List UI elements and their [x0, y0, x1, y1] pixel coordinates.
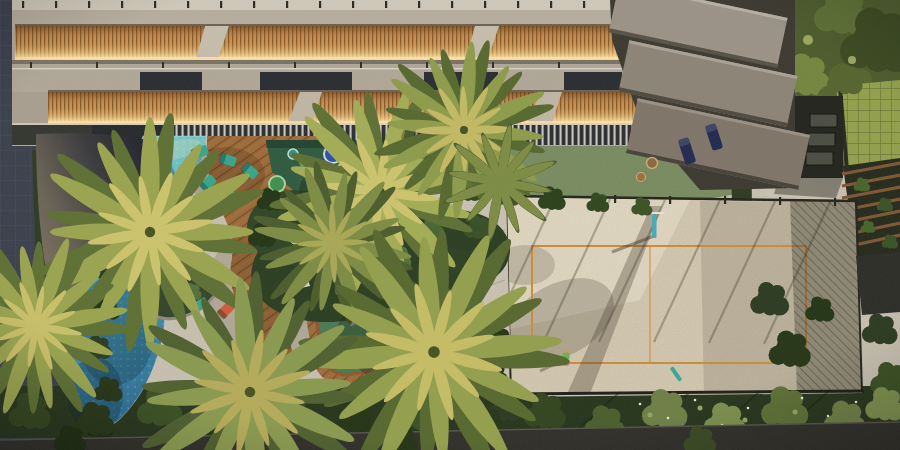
- render-viewport: [0, 0, 900, 450]
- aerial-scene: [0, 0, 900, 450]
- vignette: [0, 0, 900, 450]
